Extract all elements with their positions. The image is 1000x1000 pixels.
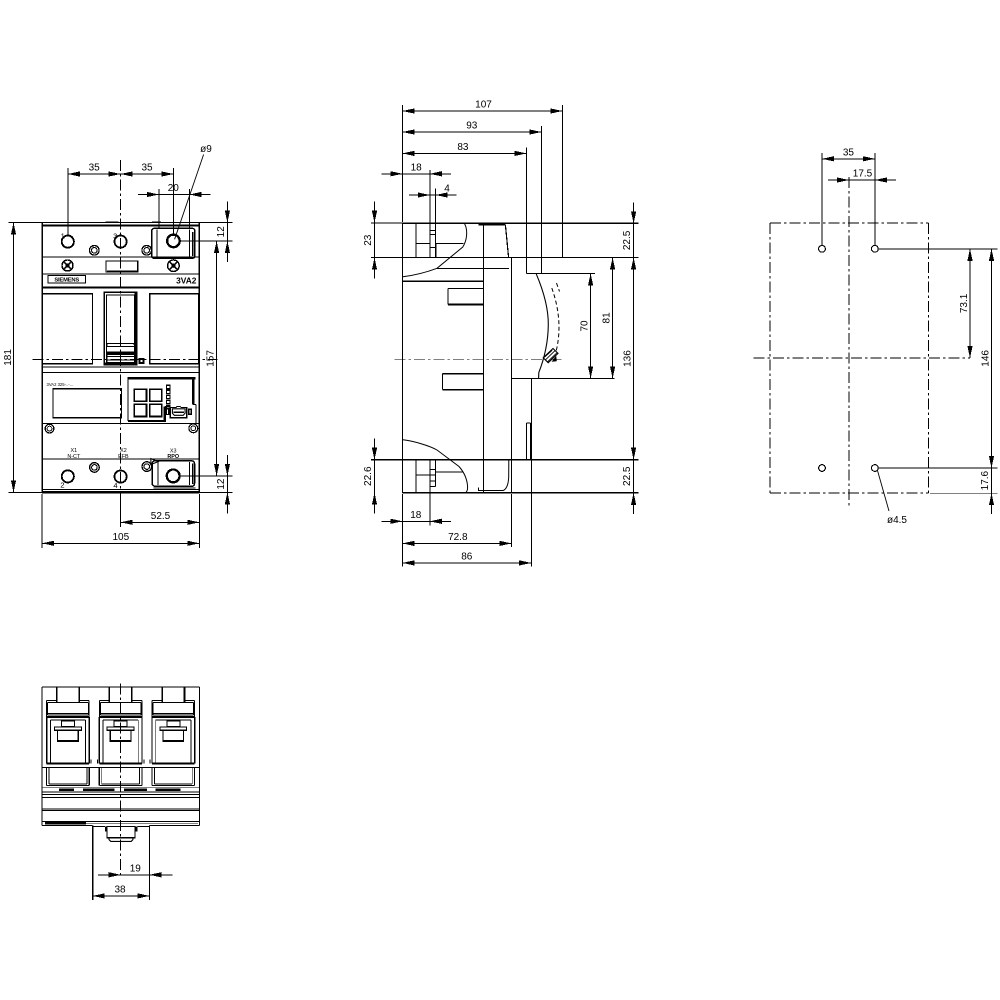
svg-text:4: 4 (444, 184, 450, 195)
svg-text:17.5: 17.5 (853, 169, 873, 180)
svg-text:1: 1 (61, 232, 65, 241)
svg-text:22.5: 22.5 (622, 466, 633, 486)
svg-text:81: 81 (601, 312, 612, 324)
svg-text:22.5: 22.5 (622, 230, 633, 250)
svg-text:22.6: 22.6 (363, 466, 374, 486)
svg-text:3VA2: 3VA2 (176, 276, 197, 286)
svg-text:93: 93 (466, 121, 478, 132)
svg-text:35: 35 (141, 163, 153, 174)
svg-text:35: 35 (843, 147, 855, 158)
svg-text:RPO: RPO (167, 454, 179, 460)
svg-text:70: 70 (579, 320, 590, 332)
svg-text:18: 18 (411, 162, 423, 173)
svg-text:ø4.5: ø4.5 (887, 515, 907, 526)
svg-text:181: 181 (3, 349, 14, 366)
svg-text:136: 136 (622, 350, 633, 367)
svg-text:20: 20 (168, 183, 180, 194)
svg-text:35: 35 (89, 163, 101, 174)
svg-text:19: 19 (130, 863, 142, 874)
svg-text:2: 2 (60, 481, 64, 490)
svg-text:3: 3 (113, 232, 117, 241)
svg-text:146: 146 (980, 350, 991, 367)
svg-text:107: 107 (475, 100, 492, 111)
svg-text:157: 157 (205, 350, 216, 367)
svg-text:SIEMENS: SIEMENS (54, 278, 79, 284)
svg-text:17.6: 17.6 (980, 470, 991, 490)
svg-text:N-CT: N-CT (67, 454, 81, 460)
svg-text:86: 86 (461, 551, 473, 562)
svg-text:4: 4 (113, 481, 117, 490)
svg-text:12: 12 (216, 226, 227, 238)
svg-text:23: 23 (363, 234, 374, 246)
svg-text:ø9: ø9 (200, 144, 212, 155)
svg-text:105: 105 (112, 532, 129, 543)
svg-text:EFB: EFB (118, 454, 129, 460)
svg-text:73.1: 73.1 (959, 293, 970, 313)
svg-text:12: 12 (216, 478, 227, 490)
svg-text:72.8: 72.8 (448, 532, 468, 543)
svg-text:18: 18 (410, 510, 422, 521)
svg-text:52.5: 52.5 (151, 511, 171, 522)
svg-text:83: 83 (457, 142, 469, 153)
svg-text:38: 38 (114, 884, 126, 895)
svg-text:3VA2 325-..-...: 3VA2 325-..-... (47, 382, 74, 387)
